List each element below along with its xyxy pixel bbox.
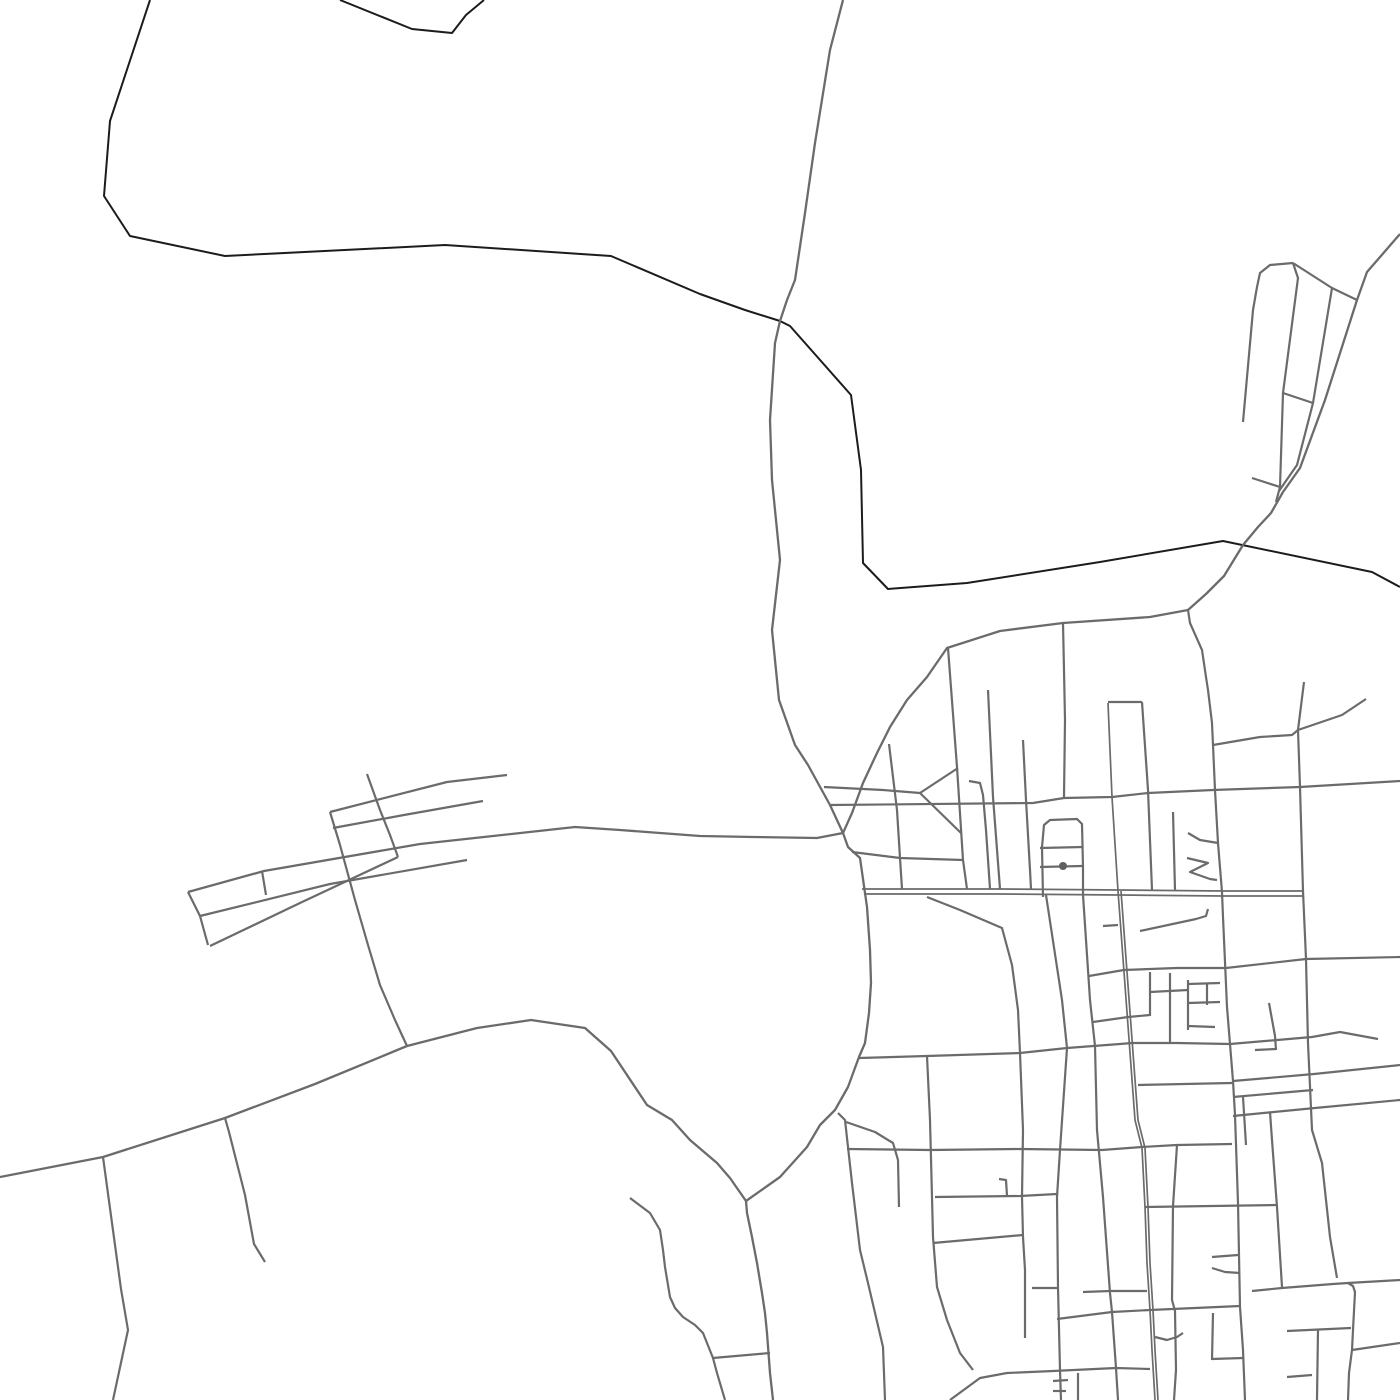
- road-v-d-street: [1023, 740, 1031, 889]
- road-west-road-to-hatch: [188, 827, 843, 892]
- road-ladder-rung-top: [1293, 263, 1357, 300]
- road-lower-h-street: [859, 1032, 1378, 1058]
- road-hook-1180: [999, 1179, 1007, 1196]
- road-ne-diagonal-road: [1188, 234, 1400, 610]
- road-h-1235-street: [933, 1235, 1023, 1243]
- road-e-stub-1381: [1053, 1380, 1068, 1381]
- road-bottom-road: [950, 1368, 1150, 1400]
- road-v-s-stub: [1243, 1097, 1246, 1145]
- road-hb3-street: [1233, 1090, 1313, 1097]
- road-north-south-gray: [770, 0, 843, 833]
- road-v-f-curve: [927, 1056, 973, 1370]
- road-squiggle-3: [1155, 1333, 1183, 1340]
- road-h-a-spur-down: [920, 793, 961, 833]
- road-hatch-steep-short: [367, 774, 398, 857]
- road-wiggle-road: [630, 1198, 725, 1400]
- road-east-stub-745: [1213, 730, 1298, 745]
- road-v-major-top: [1063, 623, 1065, 797]
- road-big-s-road: [746, 833, 871, 1400]
- road-ladder-rung-mid: [1283, 393, 1313, 403]
- road-nw-curvy-road: [104, 0, 780, 321]
- road-city-branch-s: [838, 1113, 885, 1400]
- road-u-right-rail: [1142, 702, 1152, 890]
- street-map: [0, 0, 1400, 1400]
- road-v-z-street: [1317, 1329, 1318, 1400]
- road-v-t-street: [1298, 682, 1337, 1278]
- poi-dot: [1059, 862, 1067, 870]
- road-ladder-rail-b: [1276, 263, 1298, 502]
- road-bottom-h-street: [847, 1144, 1232, 1150]
- road-ladder-rail-a-hook: [1243, 263, 1293, 422]
- road-v-a-street: [948, 648, 967, 889]
- road-s-x-street: [852, 852, 963, 860]
- road-ne-spur-699: [1298, 699, 1366, 730]
- road-box-h5: [1150, 990, 1188, 992]
- road-block-loop: [1252, 1283, 1355, 1400]
- road-branch-sw-1: [103, 1157, 128, 1400]
- road-hatch-connector: [262, 871, 266, 895]
- road-h-1291-street: [1083, 1291, 1147, 1292]
- road-branch-sw-2: [225, 1118, 265, 1262]
- road-ladder-rung-bot: [1252, 478, 1280, 487]
- road-v-x-conn: [1212, 1313, 1213, 1360]
- road-middle-h-street: [1089, 957, 1400, 976]
- road-v-y-bottom: [1172, 1145, 1177, 1400]
- road-stub-926: [1103, 925, 1118, 926]
- road-v-c-street: [988, 690, 1000, 889]
- road-v-b-street: [889, 744, 902, 889]
- road-network-svg: [0, 0, 1400, 1400]
- road-box-h2: [1188, 983, 1220, 984]
- road-h-1196-street: [935, 1194, 1057, 1197]
- road-hb4-street: [1233, 1100, 1400, 1116]
- road-black-east-west: [780, 321, 1400, 589]
- road-v-i-street: [1083, 895, 1118, 1400]
- road-hatch-left-edge: [188, 892, 208, 945]
- road-hatch-h5: [210, 857, 398, 946]
- road-hb2-street: [1233, 1065, 1400, 1081]
- road-stub-1375: [1287, 1375, 1312, 1377]
- road-h-bump: [969, 781, 990, 889]
- road-hb1-street: [1138, 1083, 1232, 1085]
- road-se-diagonal-street: [927, 897, 1025, 1338]
- road-box-h4: [1188, 1026, 1215, 1027]
- road-stub-1270-wiggle: [1212, 1268, 1240, 1273]
- road-hatch-h1: [330, 775, 507, 812]
- road-r-big-west: [0, 1020, 746, 1201]
- road-rect-loop: [1042, 819, 1083, 897]
- road-squiggle-1: [1188, 833, 1218, 843]
- road-h-a-spur-up: [920, 768, 958, 793]
- road-v-s-main-street: [1188, 610, 1245, 1400]
- road-v-mid-street: [1046, 895, 1067, 1400]
- road-v-v-street: [1270, 1112, 1282, 1287]
- road-block-east-h: [1352, 1343, 1400, 1350]
- road-h-a-street: [824, 787, 920, 793]
- road-block-east-ext: [1348, 1280, 1400, 1283]
- road-small-v-1003: [1269, 1003, 1276, 1050]
- road-squiggle-2: [1187, 858, 1217, 880]
- road-box-h1: [1093, 1015, 1150, 1022]
- road-h-1205-street: [1145, 1205, 1277, 1207]
- road-stub-1256: [1212, 1255, 1238, 1257]
- road-stub-1050: [1255, 1049, 1276, 1050]
- road-box-h3: [1188, 1002, 1220, 1003]
- road-v-y-top: [1173, 812, 1175, 890]
- road-wiggle-connector: [713, 1353, 770, 1358]
- road-rect-rung-1: [1040, 847, 1083, 848]
- road-top-check-mark: [340, 0, 484, 33]
- road-stub-919: [1140, 909, 1208, 931]
- road-ladder-rail-c: [1279, 288, 1332, 491]
- road-h-1359-conn: [1212, 1358, 1243, 1359]
